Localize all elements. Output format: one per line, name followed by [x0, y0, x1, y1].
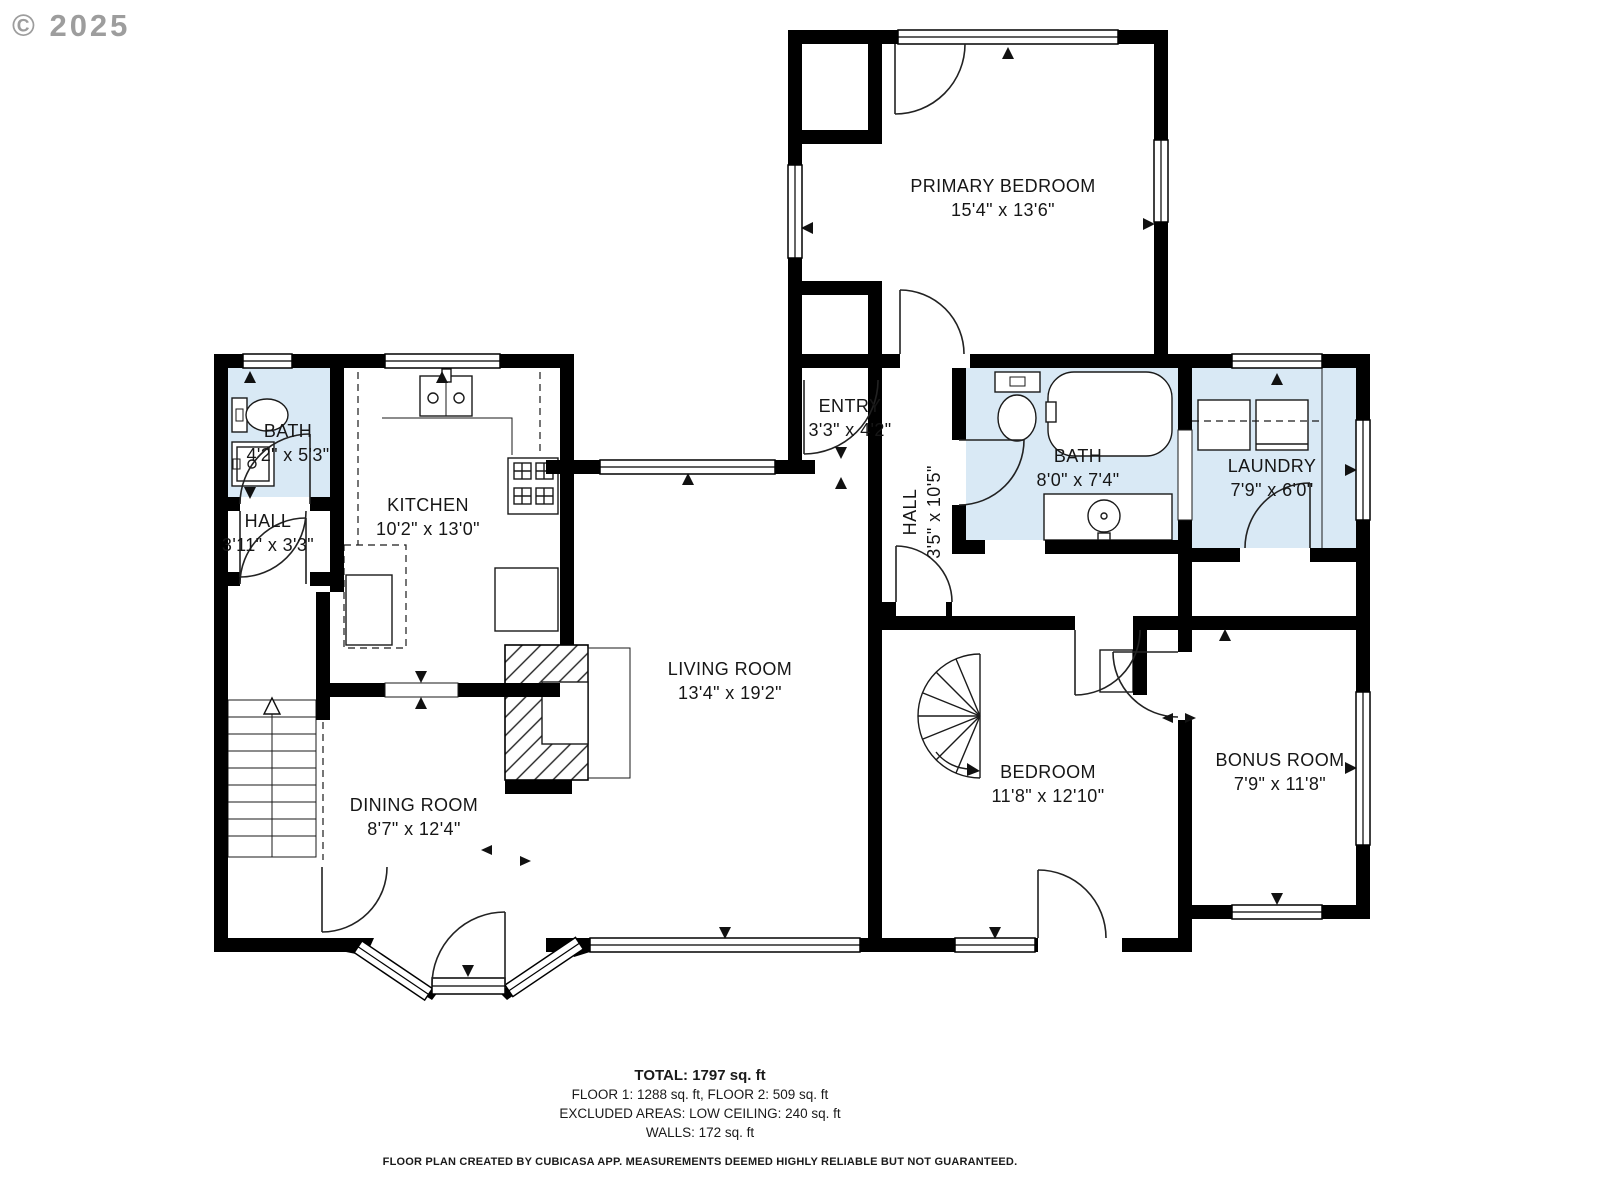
wall-area: WALLS: 172 sq. ft — [559, 1123, 840, 1142]
cased-opening — [385, 683, 458, 697]
area-summary: TOTAL: 1797 sq. ft FLOOR 1: 1288 sq. ft,… — [559, 1066, 840, 1142]
room-name: PRIMARY BEDROOM — [910, 174, 1095, 198]
bay-window-left — [354, 941, 432, 1000]
room-name: LAUNDRY — [1228, 454, 1317, 478]
room-name: HALL — [898, 465, 922, 559]
bathroom-sink-icon — [1044, 494, 1172, 540]
room-dims: 7'9" x 11'8" — [1215, 772, 1344, 796]
cased-opening — [1178, 430, 1192, 520]
fireplace-icon — [505, 645, 630, 780]
room-label-hall-upper: HALL 3'5" x 10'5" — [898, 465, 946, 559]
window — [1232, 905, 1322, 919]
room-name: BONUS ROOM — [1215, 748, 1344, 772]
window — [1232, 354, 1322, 368]
window — [898, 30, 1118, 44]
room-dims: 4'2" x 5'3" — [246, 443, 329, 467]
room-dims: 3'3" x 4'2" — [808, 418, 891, 442]
room-label-hall-small: HALL 3'11" x 3'3" — [222, 509, 314, 557]
counter-edge — [382, 418, 512, 455]
spiral-staircase — [918, 654, 980, 778]
room-label-kitchen: KITCHEN 10'2" x 13'0" — [376, 493, 480, 541]
window — [243, 354, 292, 368]
kitchen-island — [495, 568, 558, 631]
primary-bedroom-door — [900, 290, 964, 354]
room-label-primary-bedroom: PRIMARY BEDROOM 15'4" x 13'6" — [910, 174, 1095, 222]
room-label-bonus-room: BONUS ROOM 7'9" x 11'8" — [1215, 748, 1344, 796]
window — [385, 354, 500, 368]
room-name: DINING ROOM — [350, 793, 478, 817]
window — [1356, 420, 1370, 520]
floor-plan-page: { "watermark": "© 2025", "colors": { "wa… — [0, 0, 1600, 1200]
room-label-laundry: LAUNDRY 7'9" x 6'0" — [1228, 454, 1317, 502]
room-label-dining-room: DINING ROOM 8'7" x 12'4" — [350, 793, 478, 841]
floor-areas: FLOOR 1: 1288 sq. ft, FLOOR 2: 509 sq. f… — [559, 1085, 840, 1104]
bay-door-slab — [432, 978, 505, 994]
room-name: BATH — [246, 419, 329, 443]
closet-shelf — [1100, 650, 1133, 692]
room-label-entry: ENTRY 3'3" x 4'2" — [808, 394, 891, 442]
room-name: BATH — [1036, 444, 1119, 468]
window — [600, 460, 775, 474]
bay-window-right — [505, 937, 583, 996]
disclaimer-text: FLOOR PLAN CREATED BY CUBICASA APP. MEAS… — [383, 1156, 1018, 1168]
window — [788, 165, 802, 258]
room-dims: 15'4" x 13'6" — [910, 198, 1095, 222]
closet-door — [895, 44, 965, 114]
room-label-living-room: LIVING ROOM 13'4" x 19'2" — [668, 657, 792, 705]
room-dims: 11'8" x 12'10" — [992, 784, 1105, 808]
room-dims: 10'2" x 13'0" — [376, 517, 480, 541]
dining-door — [322, 867, 387, 932]
room-dims: 8'7" x 12'4" — [350, 817, 478, 841]
excluded-areas: EXCLUDED AREAS: LOW CEILING: 240 sq. ft — [559, 1104, 840, 1123]
room-dims: 13'4" x 19'2" — [668, 681, 792, 705]
window — [1356, 692, 1370, 845]
room-label-bedroom: BEDROOM 11'8" x 12'10" — [992, 760, 1105, 808]
fixtures-layer — [228, 368, 1322, 860]
staircase — [228, 698, 323, 860]
refrigerator-icon — [344, 545, 406, 648]
room-name: LIVING ROOM — [668, 657, 792, 681]
room-name: KITCHEN — [376, 493, 480, 517]
room-dims: 3'5" x 10'5" — [922, 465, 946, 559]
room-dims: 7'9" x 6'0" — [1228, 478, 1317, 502]
room-name: ENTRY — [808, 394, 891, 418]
bedroom-patio-door — [1038, 870, 1106, 938]
total-area: TOTAL: 1797 sq. ft — [559, 1066, 840, 1085]
window — [1154, 140, 1168, 222]
floor-plan-drawing — [0, 0, 1600, 1200]
room-label-bath-main: BATH 8'0" x 7'4" — [1036, 444, 1119, 492]
toilet-icon — [995, 372, 1040, 441]
room-label-bath-small: BATH 4'2" x 5'3" — [246, 419, 329, 467]
room-name: HALL — [222, 509, 314, 533]
room-dims: 3'11" x 3'3" — [222, 533, 314, 557]
window — [955, 938, 1035, 952]
room-dims: 8'0" x 7'4" — [1036, 468, 1119, 492]
room-name: BEDROOM — [992, 760, 1105, 784]
kitchen-sink-icon — [420, 369, 472, 416]
window — [590, 938, 860, 952]
